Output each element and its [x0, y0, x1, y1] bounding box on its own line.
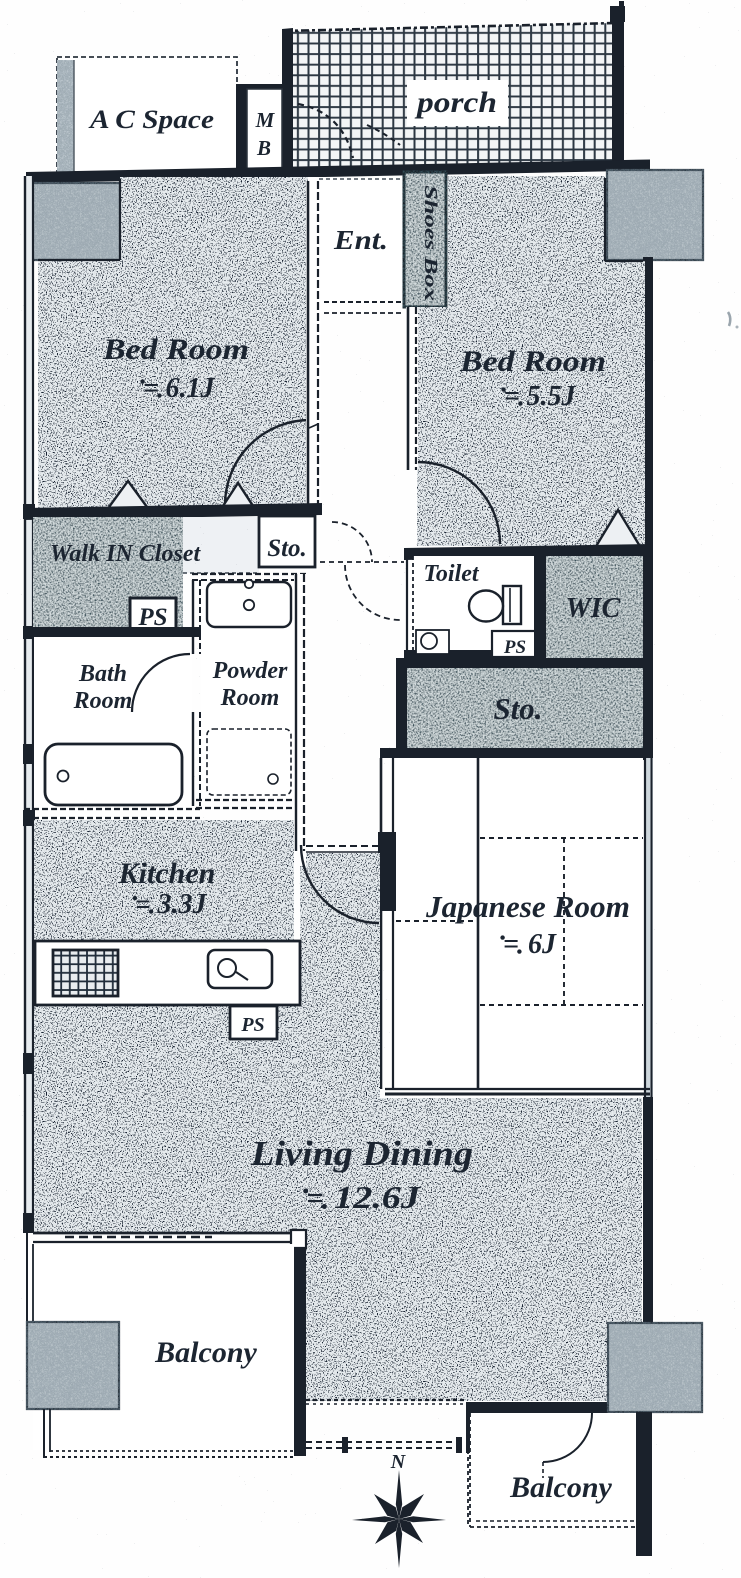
svg-text:Bed Room: Bed Room	[459, 345, 606, 378]
svg-text:=: =	[135, 889, 150, 919]
svg-text:3.3J: 3.3J	[157, 889, 208, 920]
svg-text:B: B	[256, 136, 271, 160]
svg-text:N: N	[390, 1451, 407, 1473]
svg-text:12.6J: 12.6J	[334, 1179, 421, 1215]
svg-text:PS: PS	[137, 604, 167, 631]
svg-text:Bed Room: Bed Room	[102, 333, 249, 366]
svg-text:PS: PS	[503, 637, 526, 658]
svg-text:5.5J: 5.5J	[527, 381, 577, 412]
svg-text:Kitchen: Kitchen	[118, 857, 216, 890]
svg-text:6.1J: 6.1J	[166, 373, 216, 404]
svg-text:Toilet: Toilet	[423, 561, 479, 587]
svg-text:Living Dining: Living Dining	[250, 1134, 473, 1173]
svg-text:6J: 6J	[528, 929, 557, 960]
svg-text:Powder: Powder	[212, 658, 288, 684]
svg-text:PS: PS	[240, 1014, 264, 1036]
svg-text:Room: Room	[220, 685, 280, 711]
svg-text:Japanese Room: Japanese Room	[425, 889, 630, 924]
svg-text:A C Space: A C Space	[88, 105, 214, 134]
svg-text:=: =	[143, 373, 159, 404]
svg-text:WIC: WIC	[566, 593, 621, 624]
svg-text:Bath: Bath	[78, 661, 127, 687]
svg-text:Walk IN Closet: Walk IN Closet	[50, 541, 202, 567]
svg-text:M: M	[255, 108, 276, 132]
svg-text:Room: Room	[73, 688, 133, 714]
svg-text:Balcony: Balcony	[154, 1336, 257, 1369]
svg-text:Sto.: Sto.	[493, 691, 542, 726]
svg-text:porch: porch	[414, 86, 497, 119]
svg-text:=: =	[504, 381, 520, 412]
svg-text:Shoes Box: Shoes Box	[421, 185, 441, 301]
svg-text:Ent.: Ent.	[333, 225, 388, 255]
svg-text:Balcony: Balcony	[509, 1471, 612, 1504]
svg-text:=: =	[306, 1180, 324, 1215]
svg-text:Sto.: Sto.	[267, 535, 307, 562]
svg-text:=: =	[503, 929, 519, 960]
